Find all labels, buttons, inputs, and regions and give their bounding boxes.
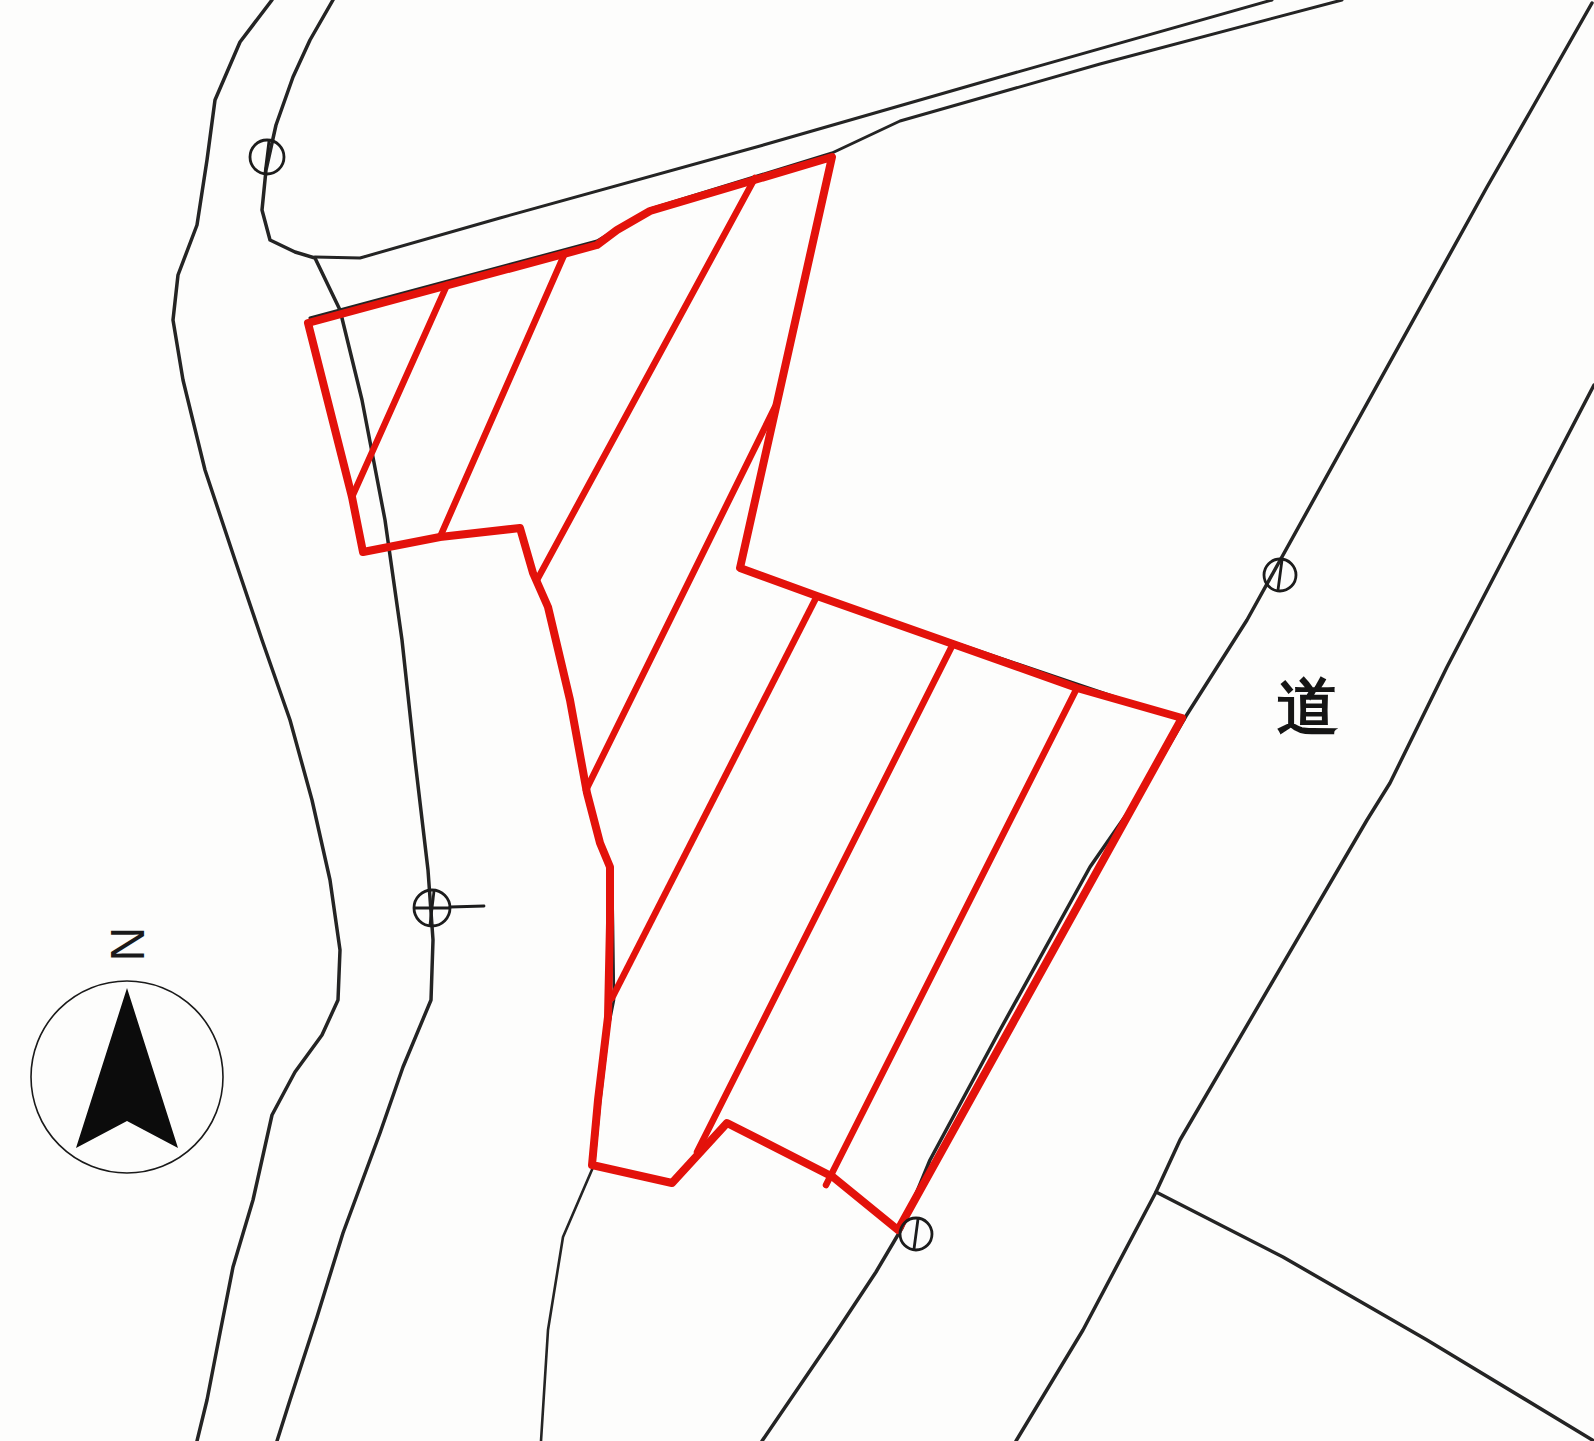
survey-marker-bottom-vline xyxy=(914,1219,918,1249)
map-svg: N道 xyxy=(0,0,1594,1441)
left-road-inner-edge xyxy=(262,0,433,1441)
hatch-line-2 xyxy=(440,253,565,537)
parcel-outline xyxy=(308,157,1182,1230)
road-lines xyxy=(173,0,1594,1441)
cadastral-map-page: N道 xyxy=(0,0,1594,1441)
survey-marker-top-left-vline xyxy=(265,141,269,173)
compass-north-arrow: N xyxy=(31,927,223,1173)
compass-arrow xyxy=(76,988,178,1148)
hatch-line-7 xyxy=(826,688,1077,1185)
hatch-line-5 xyxy=(612,596,817,998)
mid-road-edge-under-parcel xyxy=(522,532,614,1441)
top-road-upper-edge xyxy=(315,0,1272,258)
right-road-branch-edge xyxy=(1156,1192,1594,1441)
hatch-line-6 xyxy=(697,644,953,1152)
compass-n-label: N xyxy=(101,927,154,962)
right-road-right-edge xyxy=(1016,385,1594,1441)
survey-marker-mid-left xyxy=(414,890,484,926)
parcel-boundary-group xyxy=(308,157,1182,1230)
road-kanji-label: 道 xyxy=(1277,670,1339,743)
survey-marker-mid-left-tick xyxy=(450,906,484,907)
survey-marker-bottom xyxy=(900,1218,932,1250)
hatch-line-1 xyxy=(352,285,447,497)
left-road-outer-edge xyxy=(173,0,340,1441)
